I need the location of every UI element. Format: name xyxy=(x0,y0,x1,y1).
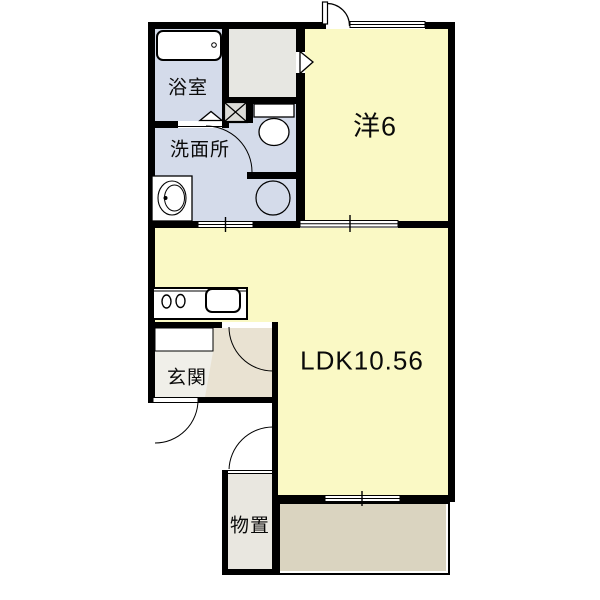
floor-plan: 浴室 洗面所 洋6 LDK10.56 玄関 物置 xyxy=(0,0,600,600)
pipe-space xyxy=(224,102,247,122)
kitchen-sink xyxy=(206,289,240,312)
ldk-window xyxy=(325,491,400,506)
washing-machine-space xyxy=(256,181,290,215)
top-window xyxy=(350,22,425,28)
toilet xyxy=(254,104,294,146)
closet-door-marker xyxy=(300,52,313,74)
western-room-sliding-door xyxy=(300,215,398,232)
entry-door-arc xyxy=(327,4,350,27)
washroom-sliding-door xyxy=(198,217,253,232)
front-door-arc xyxy=(155,400,198,443)
entrance-label: 玄関 xyxy=(167,363,207,390)
front-door-opening xyxy=(153,398,198,403)
western-room-label: 洋6 xyxy=(353,105,397,144)
shoe-cabinet xyxy=(155,328,213,351)
entrance-tataki xyxy=(205,328,272,397)
washbasin xyxy=(152,176,192,221)
ldk-label: LDK10.56 xyxy=(300,346,424,377)
stove-burner xyxy=(162,295,171,308)
washroom-label: 洗面所 xyxy=(170,135,230,162)
bath-door-marker xyxy=(200,112,222,121)
storage-label: 物置 xyxy=(230,511,270,538)
bathroom-label: 浴室 xyxy=(168,73,208,100)
bathtub-drain xyxy=(212,43,217,48)
stove-burner xyxy=(176,295,185,308)
storage-door-arc xyxy=(229,427,273,470)
entry-door-leaf xyxy=(323,2,328,24)
fixtures-layer xyxy=(0,0,600,600)
